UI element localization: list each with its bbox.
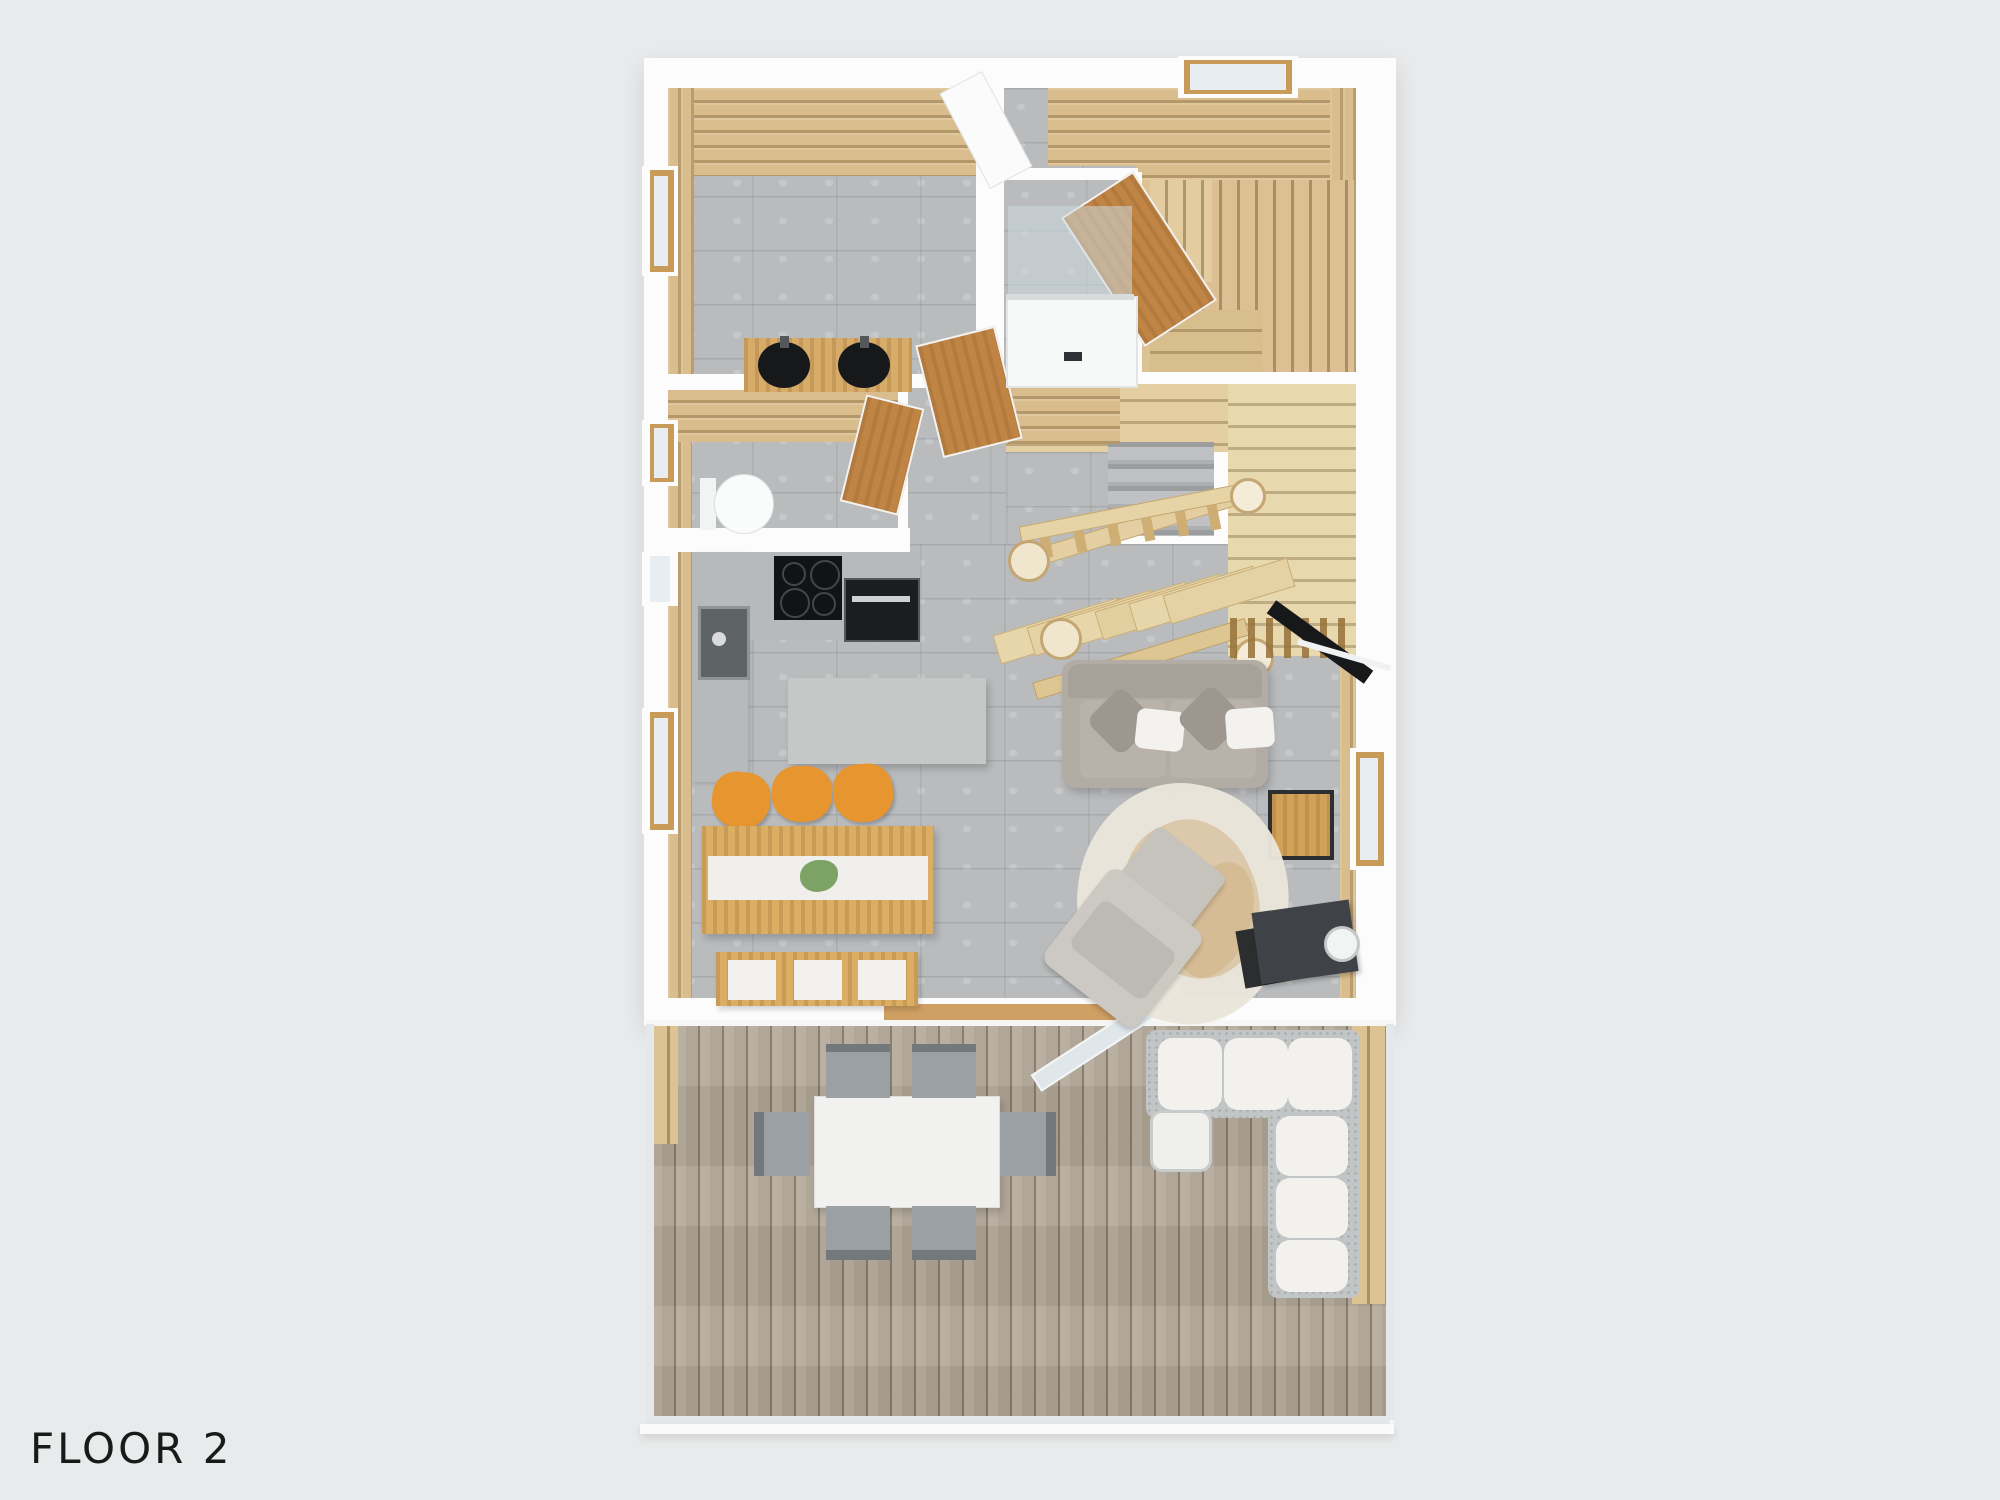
cooktop-ring-2 bbox=[810, 560, 840, 590]
deck-sofa-ottoman bbox=[1150, 1110, 1212, 1172]
deck-sofa-cushion-3 bbox=[1276, 1116, 1348, 1176]
deck-sofa-cushion-2 bbox=[1224, 1038, 1288, 1110]
vanity-sink-left bbox=[758, 342, 810, 388]
deck-chair-top-2 bbox=[912, 1052, 976, 1098]
deck-chair-bottom-2 bbox=[912, 1206, 976, 1252]
stove-flue-pipe bbox=[1324, 926, 1360, 962]
deck-chair-left bbox=[764, 1112, 810, 1176]
stair-newel-top-right bbox=[1230, 478, 1266, 514]
deck-chair-left-back bbox=[754, 1112, 764, 1176]
window-kitchen-glass bbox=[650, 556, 670, 602]
deck-chair-bottom-1 bbox=[826, 1206, 890, 1252]
deck-sofa-cushion-1 bbox=[1158, 1038, 1222, 1110]
dining-chair-2 bbox=[772, 766, 832, 822]
oven bbox=[844, 578, 920, 642]
window-living-glass bbox=[1360, 758, 1378, 860]
deck-sofa-cushion-4 bbox=[1276, 1178, 1348, 1238]
deck-corner-boards bbox=[652, 1026, 678, 1144]
sofa-backrest bbox=[1068, 664, 1262, 698]
deck-door-track bbox=[884, 1004, 1124, 1020]
vanity-sink-right bbox=[838, 342, 890, 388]
deck-railing-left bbox=[646, 1024, 654, 1424]
deck-chair-top-1 bbox=[826, 1052, 890, 1098]
oven-handle bbox=[852, 596, 910, 602]
deck-railing-bottom bbox=[646, 1416, 1390, 1424]
deck-chair-right bbox=[1000, 1112, 1046, 1176]
wall-wc-south bbox=[660, 528, 910, 552]
window-wc-glass bbox=[654, 428, 668, 478]
window-dining-glass bbox=[654, 718, 668, 824]
bench-cushion-3 bbox=[858, 960, 906, 1000]
deck-railing-right bbox=[1386, 1024, 1394, 1420]
deck-sofa-cushion-5 bbox=[1276, 1240, 1348, 1292]
corridor-wall-log-top bbox=[1048, 88, 1138, 166]
kitchen-island bbox=[788, 678, 986, 764]
deck-fascia bbox=[640, 1424, 1394, 1434]
deck-sofa-cushion-corner bbox=[1288, 1038, 1352, 1110]
bench-cushion-2 bbox=[794, 960, 842, 1000]
window-bathroom-glass bbox=[654, 176, 668, 266]
deck-chair-bottom-1-back bbox=[826, 1250, 890, 1260]
vanity-faucet-right bbox=[860, 336, 869, 348]
deck-table bbox=[814, 1096, 1000, 1208]
toilet-bowl bbox=[714, 474, 774, 534]
bench-cushion-1 bbox=[728, 960, 776, 1000]
shower-faucet bbox=[1064, 352, 1082, 361]
sofa-pillow-white-right bbox=[1225, 706, 1276, 749]
floor-label: FLOOR 2 bbox=[30, 1424, 232, 1473]
hall-east-halfwall bbox=[1008, 384, 1120, 444]
kitchen-sink-faucet bbox=[712, 632, 726, 646]
cooktop-ring-4 bbox=[812, 592, 836, 616]
stair-newel-top-left bbox=[1008, 540, 1050, 582]
deck-chair-right-back bbox=[1046, 1112, 1056, 1176]
sauna-wall-log-top bbox=[1138, 88, 1354, 180]
sofa-pillow-white-left bbox=[1134, 708, 1186, 753]
cooktop-ring-1 bbox=[782, 562, 806, 586]
stair-newel-bottom-left bbox=[1040, 618, 1082, 660]
vanity-faucet-left bbox=[780, 336, 789, 348]
deck-chair-bottom-2-back bbox=[912, 1250, 976, 1260]
shower-glass-bar bbox=[1006, 294, 1134, 300]
shower-tray bbox=[1006, 296, 1138, 388]
shower-glass-panel bbox=[1008, 206, 1132, 298]
window-sauna-glass bbox=[1190, 64, 1286, 90]
floorplan-canvas: FLOOR 2 bbox=[0, 0, 2000, 1500]
cooktop-ring-3 bbox=[780, 588, 810, 618]
